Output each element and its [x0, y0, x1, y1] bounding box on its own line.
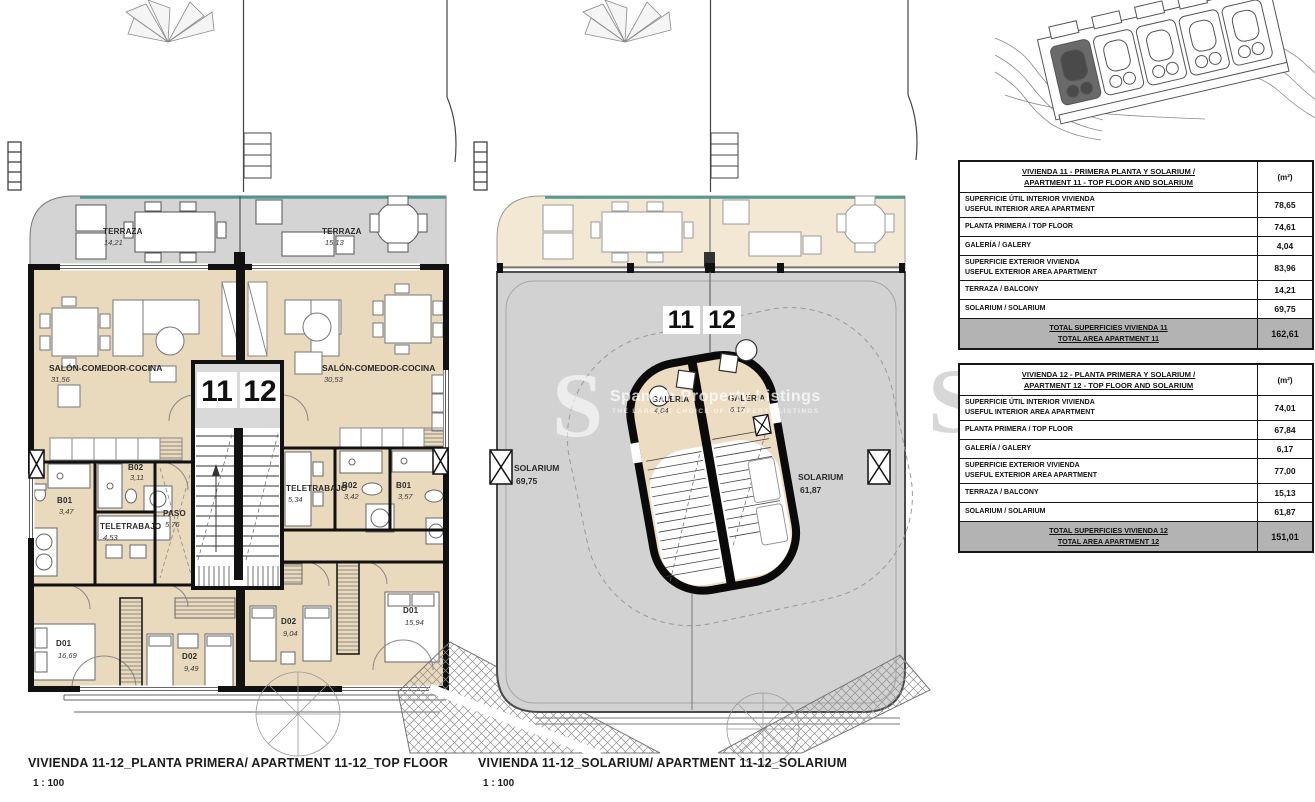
- room-area-salon-12: 30,53: [324, 375, 344, 384]
- row-value: 14,21: [1257, 281, 1312, 299]
- row-value: 6,17: [1257, 440, 1312, 458]
- room-area-terraza-11: 14,21: [104, 238, 123, 247]
- area-table-apartment-11: VIVIENDA 11 - PRIMERA PLANTA Y SOLARIUM …: [958, 160, 1314, 350]
- table-row: SUPERFICIE ÚTIL INTERIOR VIVIENDAUSEFUL …: [960, 192, 1312, 217]
- table-row: GALERÍA / GALERY 4,04: [960, 236, 1312, 255]
- room-area-teletrabajo-12: 5,34: [288, 495, 303, 504]
- room-area-terraza-12: 15,13: [325, 238, 345, 247]
- total-value: 151,01: [1257, 522, 1312, 551]
- room-label-terraza-11: TERRAZA: [103, 227, 143, 236]
- table-total-row: TOTAL SUPERFICIES VIVIENDA 12TOTAL AREA …: [960, 521, 1312, 551]
- caption-title: VIVIENDA 11-12_SOLARIUM/ APARTMENT 11-12…: [478, 756, 847, 770]
- table-header-row: VIVIENDA 12 - PLANTA PRIMERA Y SOLARIUM …: [960, 365, 1312, 395]
- caption-scale: 1 : 100: [483, 778, 847, 789]
- table-row: SUPERFICIE ÚTIL INTERIOR VIVIENDAUSEFUL …: [960, 395, 1312, 420]
- room-area-galeria-12: 6,17: [730, 405, 745, 414]
- table-title-line2: APARTMENT 12 - TOP FLOOR AND SOLARIUM: [965, 380, 1252, 391]
- unit-number-11: 11: [668, 306, 695, 334]
- row-label: PLANTA PRIMERA / TOP FLOOR: [965, 425, 1252, 435]
- building-row: [1035, 0, 1289, 125]
- room-label-d01-11: D01: [56, 639, 72, 648]
- table-row: SOLARIUM / SOLARIUM 61,87: [960, 502, 1312, 521]
- room-area-d01-12: 15,94: [405, 618, 424, 627]
- table-row: PLANTA PRIMERA / TOP FLOOR 67,84: [960, 420, 1312, 439]
- table-unit-header: (m²): [1257, 365, 1312, 395]
- row-value: 15,13: [1257, 484, 1312, 502]
- terrace-band-top-floor: TERRAZA 14,21 TERRAZA 15,13: [30, 196, 446, 268]
- floor-plan-solarium: 11 12: [474, 0, 932, 765]
- room-label-terraza-12: TERRAZA: [322, 227, 362, 236]
- stair-symbol-top: [244, 133, 271, 178]
- row-value: 74,61: [1257, 218, 1312, 236]
- row-label: SUPERFICIE EXTERIOR VIVIENDA: [965, 461, 1252, 471]
- room-area-galeria-11: 4,04: [654, 406, 669, 415]
- row-label: USEFUL INTERIOR AREA APARTMENT: [965, 408, 1252, 418]
- room-label-teletrabajo-11: TELETRABAJO: [100, 522, 161, 531]
- row-label: GALERÍA / GALERY: [965, 241, 1252, 251]
- unit-number-11: 11: [201, 375, 233, 408]
- caption-title: VIVIENDA 11-12_PLANTA PRIMERA/ APARTMENT…: [28, 756, 448, 770]
- unit-number-12: 12: [243, 375, 276, 408]
- room-area-b01-12: 3,57: [398, 492, 413, 501]
- room-area-teletrabajo-11: 4,53: [103, 533, 118, 542]
- room-area-solarium-12: 61,87: [800, 485, 822, 495]
- stair-symbol-top: [711, 133, 738, 178]
- room-label-d02-11: D02: [182, 652, 198, 661]
- room-label-d01-12: D01: [403, 606, 419, 615]
- total-label-line1: TOTAL SUPERFICIES VIVIENDA 11: [965, 323, 1252, 333]
- ladder-hatch-left: [474, 142, 487, 190]
- table-row: GALERÍA / GALERY 6,17: [960, 439, 1312, 458]
- boundary-lines: [244, 0, 457, 192]
- table-row: TERRAZA / BALCONY 14,21: [960, 280, 1312, 299]
- row-label: USEFUL EXTERIOR AREA APARTMENT: [965, 268, 1252, 278]
- row-value: 67,84: [1257, 421, 1312, 439]
- table-row: SOLARIUM / SOLARIUM 69,75: [960, 299, 1312, 318]
- row-value: 77,00: [1257, 459, 1312, 483]
- room-label-solarium-11: SOLARIUM: [514, 463, 559, 473]
- room-area-b01-11: 3,47: [59, 507, 74, 516]
- table-title-line1: VIVIENDA 12 - PLANTA PRIMERA Y SOLARIUM …: [965, 369, 1252, 380]
- row-label: PLANTA PRIMERA / TOP FLOOR: [965, 222, 1252, 232]
- total-label-line2: TOTAL AREA APARTMENT 12: [965, 537, 1252, 547]
- row-value: 4,04: [1257, 237, 1312, 255]
- palm-tree-icon: [583, 0, 671, 42]
- room-area-d02-11: 9,49: [184, 664, 199, 673]
- garden-tree-icon: [256, 672, 340, 756]
- row-label: TERRAZA / BALCONY: [965, 285, 1252, 295]
- row-label: TERRAZA / BALCONY: [965, 488, 1252, 498]
- row-value: 74,01: [1257, 396, 1312, 420]
- ladder-hatch-left: [8, 142, 21, 190]
- row-label: SOLARIUM / SOLARIUM: [965, 507, 1252, 517]
- room-label-galeria-11: GALERIA: [652, 395, 689, 404]
- area-table-apartment-12: VIVIENDA 12 - PLANTA PRIMERA Y SOLARIUM …: [958, 363, 1314, 553]
- room-area-paso-11: 5,76: [165, 520, 180, 529]
- terrace-band-solarium-level: [497, 196, 905, 268]
- site-location-map: [995, 0, 1315, 140]
- room-label-b02-12: B02: [342, 481, 358, 490]
- room-label-galeria-12: GALERIA: [728, 394, 765, 403]
- room-area-salon-11: 31,56: [51, 375, 71, 384]
- boundary-lines: [711, 0, 918, 192]
- room-area-d02-12: 9,04: [283, 629, 298, 638]
- room-label-b02-11: B02: [128, 463, 144, 472]
- room-label-paso-11: PASO: [163, 509, 186, 518]
- total-value: 162,61: [1257, 319, 1312, 348]
- table-row: TERRAZA / BALCONY 15,13: [960, 483, 1312, 502]
- row-label: SUPERFICIE ÚTIL INTERIOR VIVIENDA: [965, 398, 1252, 408]
- room-area-solarium-11: 69,75: [516, 476, 538, 486]
- room-label-teletrabajo-12: TELETRABAJO: [286, 484, 347, 493]
- row-label: USEFUL INTERIOR AREA APARTMENT: [965, 205, 1252, 215]
- unit-number-12: 12: [708, 306, 736, 334]
- row-value: 83,96: [1257, 256, 1312, 280]
- caption-solarium: VIVIENDA 11-12_SOLARIUM/ APARTMENT 11-12…: [478, 756, 847, 789]
- capsule-x-box: [753, 414, 771, 435]
- row-value: 69,75: [1257, 300, 1312, 318]
- staircase-core: 11 12: [193, 362, 282, 588]
- balcony-lines: [64, 695, 446, 712]
- total-label-line2: TOTAL AREA APARTMENT 11: [965, 334, 1252, 344]
- table-unit-header: (m²): [1257, 162, 1312, 192]
- room-label-b01-11: B01: [57, 496, 73, 505]
- table-title-line1: VIVIENDA 11 - PRIMERA PLANTA Y SOLARIUM …: [965, 166, 1252, 177]
- room-label-d02-12: D02: [281, 617, 297, 626]
- row-label: SUPERFICIE EXTERIOR VIVIENDA: [965, 258, 1252, 268]
- row-value: 78,65: [1257, 193, 1312, 217]
- room-label-salon-11: SALÓN-COMEDOR-COCINA: [49, 362, 162, 373]
- room-label-solarium-12: SOLARIUM: [798, 472, 843, 482]
- row-value: 61,87: [1257, 503, 1312, 521]
- room-label-salon-12: SALÓN-COMEDOR-COCINA: [322, 362, 435, 373]
- caption-top-floor: VIVIENDA 11-12_PLANTA PRIMERA/ APARTMENT…: [28, 756, 448, 789]
- table-row: PLANTA PRIMERA / TOP FLOOR 74,61: [960, 217, 1312, 236]
- table-row: SUPERFICIE EXTERIOR VIVIENDAUSEFUL EXTER…: [960, 255, 1312, 280]
- row-label: SUPERFICIE ÚTIL INTERIOR VIVIENDA: [965, 195, 1252, 205]
- table-header-row: VIVIENDA 11 - PRIMERA PLANTA Y SOLARIUM …: [960, 162, 1312, 192]
- row-label: GALERÍA / GALERY: [965, 444, 1252, 454]
- blueprint-sheet: TERRAZA 14,21 TERRAZA 15,13: [0, 0, 1315, 802]
- caption-scale: 1 : 100: [33, 778, 448, 789]
- room-area-d01-11: 16,69: [58, 651, 78, 660]
- table-row: SUPERFICIE EXTERIOR VIVIENDAUSEFUL EXTER…: [960, 458, 1312, 483]
- palm-tree-icon: [126, 0, 214, 42]
- row-label: SOLARIUM / SOLARIUM: [965, 304, 1252, 314]
- room-area-b02-11: 3,11: [130, 473, 144, 482]
- room-area-b02-12: 3,42: [344, 492, 359, 501]
- row-label: USEFUL EXTERIOR AREA APARTMENT: [965, 471, 1252, 481]
- table-title-line2: APARTMENT 11 - TOP FLOOR AND SOLARIUM: [965, 177, 1252, 188]
- table-total-row: TOTAL SUPERFICIES VIVIENDA 11TOTAL AREA …: [960, 318, 1312, 348]
- total-label-line1: TOTAL SUPERFICIES VIVIENDA 12: [965, 526, 1252, 536]
- room-label-b01-12: B01: [396, 481, 412, 490]
